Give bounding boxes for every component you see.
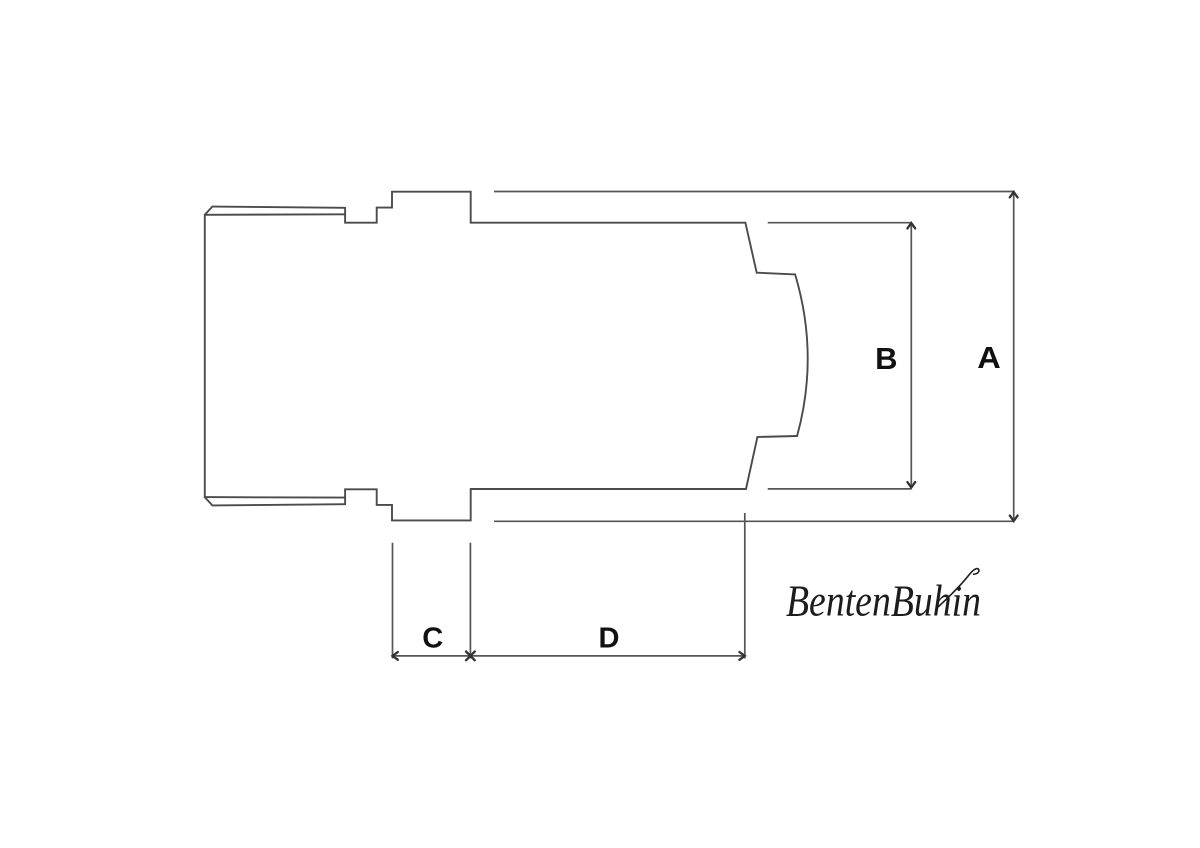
svg-text:C: C <box>422 622 443 654</box>
svg-text:A: A <box>977 340 1001 375</box>
svg-text:B: B <box>875 341 897 376</box>
svg-text:D: D <box>599 622 620 654</box>
svg-text:BentenBuhin: BentenBuhin <box>786 577 981 626</box>
